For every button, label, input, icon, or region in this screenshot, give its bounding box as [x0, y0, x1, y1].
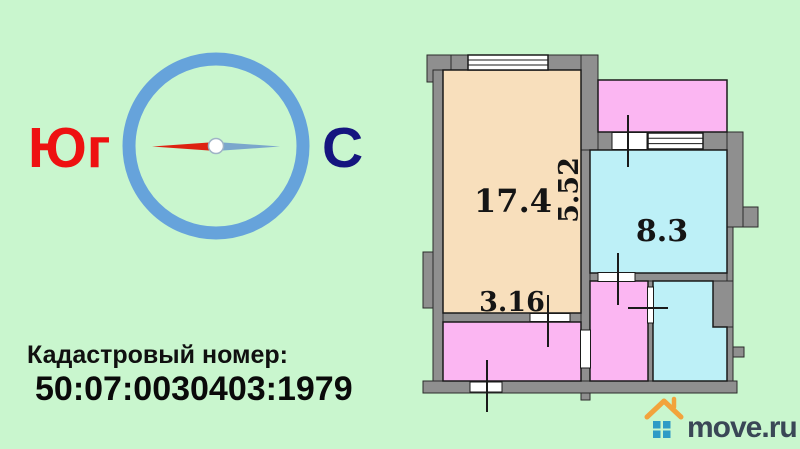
cadastral-number: 50:07:0030403:1979	[35, 372, 353, 406]
compass-south-label: Юг	[28, 120, 111, 177]
door-opening	[612, 133, 647, 150]
door-opening	[598, 273, 635, 282]
wall-segment	[581, 55, 598, 150]
door-opening	[648, 287, 654, 323]
logo-window-pane	[653, 421, 661, 429]
logo-window-pane	[663, 421, 671, 429]
room-8-3-area-label: 8.3	[636, 214, 688, 249]
room-height-label: 5.52	[554, 157, 585, 223]
wall-segment	[727, 227, 733, 281]
room-8-3	[590, 150, 727, 273]
floorplan-advert: 17.4 5.52 3.16 8.3 Юг С Кадастровый номе…	[0, 0, 800, 449]
logo-window-pane	[653, 431, 661, 439]
window	[648, 133, 703, 149]
compass-north-label: С	[322, 120, 363, 177]
compass-hub	[209, 139, 224, 154]
logo-text: move.ru	[687, 413, 797, 443]
hallway	[443, 322, 581, 381]
wall-segment	[733, 347, 744, 357]
wall-segment	[727, 132, 743, 227]
room-17-4-area-label: 17.4	[474, 182, 552, 220]
room-width-label: 3.16	[479, 287, 545, 318]
window	[468, 55, 548, 70]
wall-segment	[433, 70, 443, 381]
floor-plan: 17.4 5.52 3.16 8.3	[423, 55, 758, 412]
cadastral-label: Кадастровый номер:	[27, 343, 288, 368]
wall-segment	[423, 252, 433, 308]
balcony	[598, 80, 727, 132]
wall-segment	[743, 207, 758, 227]
wall-segment	[727, 327, 733, 381]
wall-segment	[713, 281, 733, 327]
logo-window-pane	[663, 431, 671, 439]
door-opening	[581, 330, 591, 368]
